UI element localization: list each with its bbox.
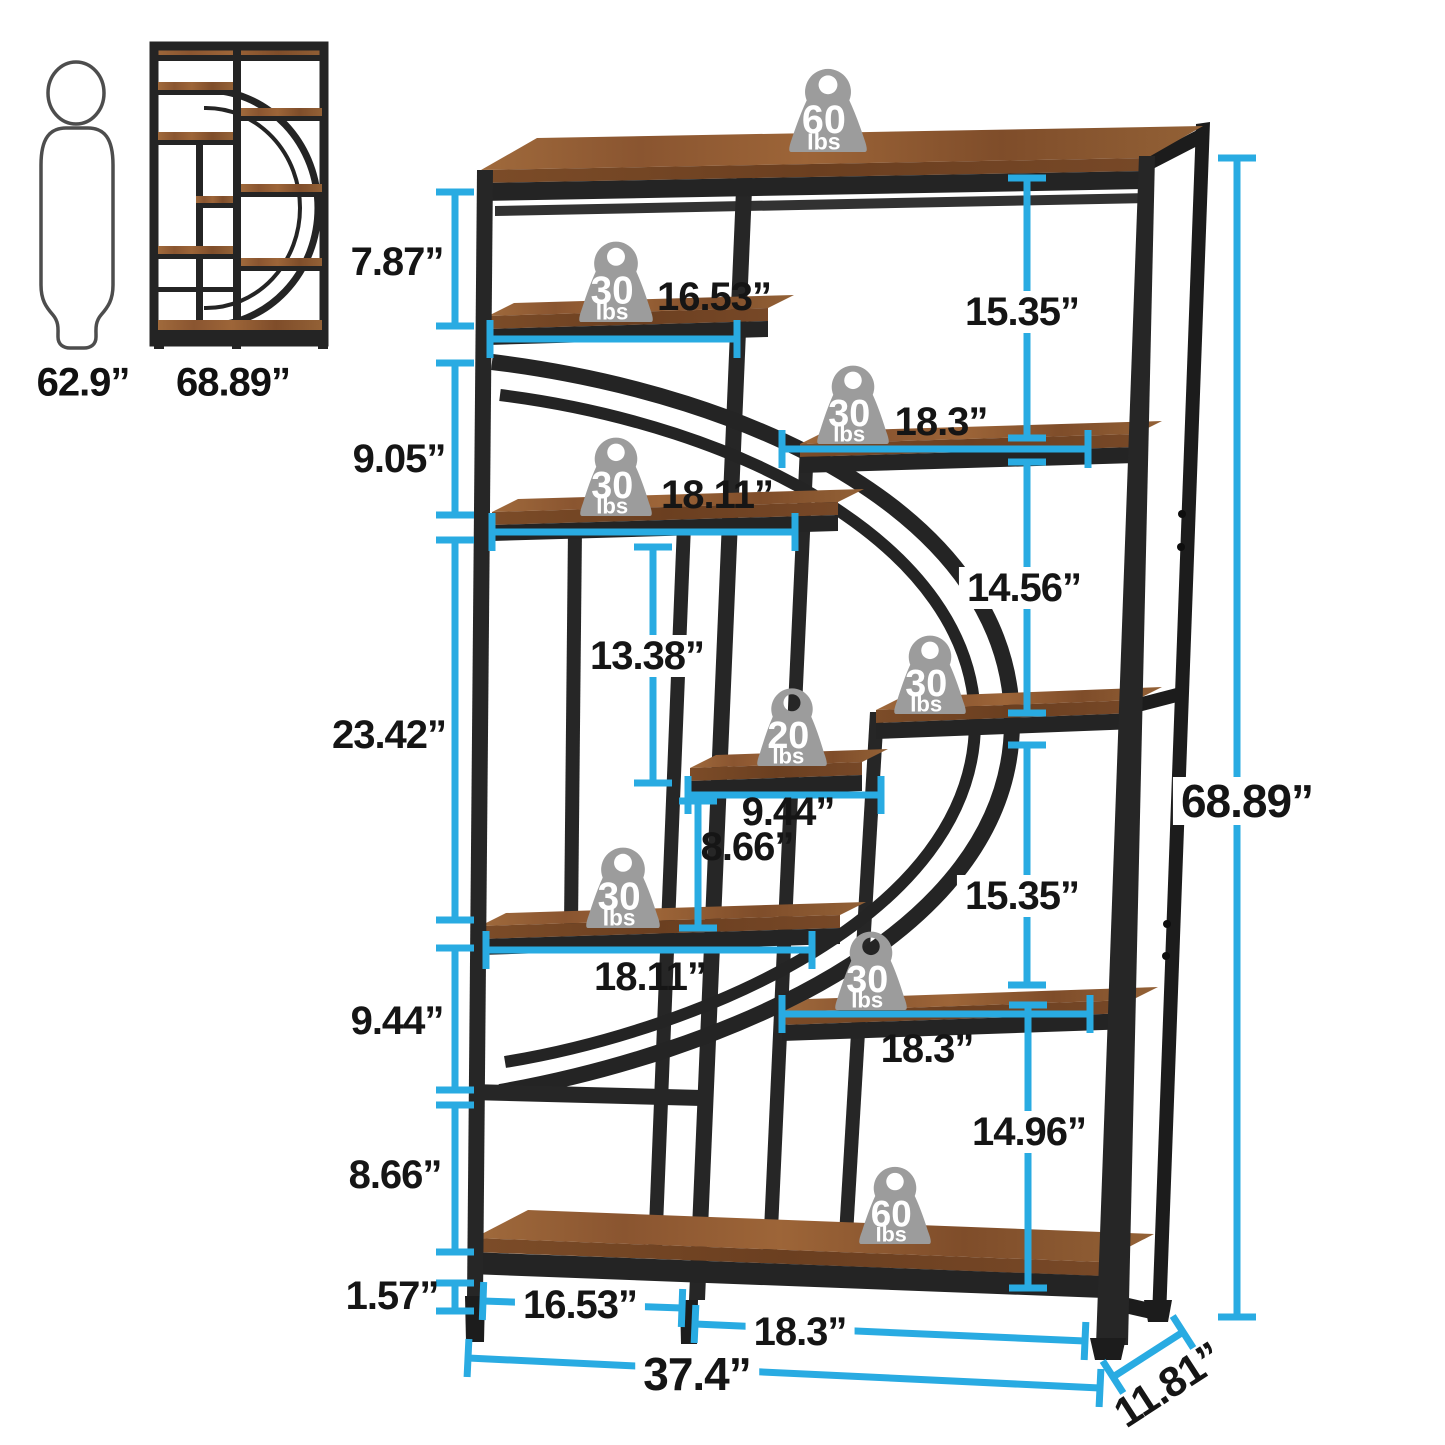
dimension-line-group: [436, 948, 474, 1090]
main-bookshelf: [465, 122, 1210, 1360]
back-right-post: [1152, 122, 1210, 1318]
weight-unit: Ibs: [596, 298, 629, 324]
dimension-line-group: [436, 540, 474, 920]
weight-badge: 30Ibs: [580, 438, 652, 519]
right-front-foot: [1090, 1338, 1126, 1360]
person-head: [48, 62, 104, 124]
person-body: [41, 128, 113, 348]
dimension-line-group: [1008, 745, 1046, 985]
inner-right-post-a: [763, 446, 814, 1252]
dimension-line-group: [482, 1282, 682, 1327]
dimension-line-group: [436, 192, 474, 326]
inner-left-short-post: [564, 528, 582, 926]
dimension-line-group: [634, 547, 672, 783]
weight-badge: 60Ibs: [859, 1167, 931, 1247]
dimension-line-group: [1218, 158, 1256, 1317]
reference-person-figure: [41, 62, 113, 348]
weight-unit: Ibs: [772, 744, 804, 769]
weight-badge: 30Ibs: [586, 848, 660, 931]
weight-unit: Ibs: [833, 422, 865, 447]
weight-badge: 60Ibs: [789, 69, 867, 155]
product-dimension-diagram: 60Ibs30Ibs30Ibs30Ibs30Ibs20Ibs30Ibs30Ibs…: [0, 0, 1445, 1445]
thumb-inner-post: [196, 132, 203, 342]
thumbnail-bookshelf: [150, 42, 328, 349]
back-right-foot: [1144, 1300, 1172, 1322]
weight-badge: 30Ibs: [579, 242, 653, 325]
dimension-line-group: [694, 1305, 1086, 1360]
bottom-slab: [470, 1210, 1154, 1298]
dimension-line-group: [467, 1339, 1101, 1407]
weight-unit: Ibs: [851, 988, 883, 1013]
bookshelf-illustration: 60Ibs30Ibs30Ibs30Ibs30Ibs20Ibs30Ibs30Ibs…: [0, 0, 1445, 1445]
weight-unit: Ibs: [910, 692, 942, 717]
weight-unit: Ibs: [603, 904, 636, 930]
dimension-line-group: [436, 363, 474, 515]
right-front-post: [1096, 156, 1155, 1345]
weight-unit: Ibs: [596, 494, 628, 519]
weight-badge: 30Ibs: [817, 366, 889, 447]
weight-unit: Ibs: [876, 1222, 907, 1247]
weight-unit: Ibs: [807, 128, 841, 154]
dimension-line-group: [1008, 178, 1046, 438]
